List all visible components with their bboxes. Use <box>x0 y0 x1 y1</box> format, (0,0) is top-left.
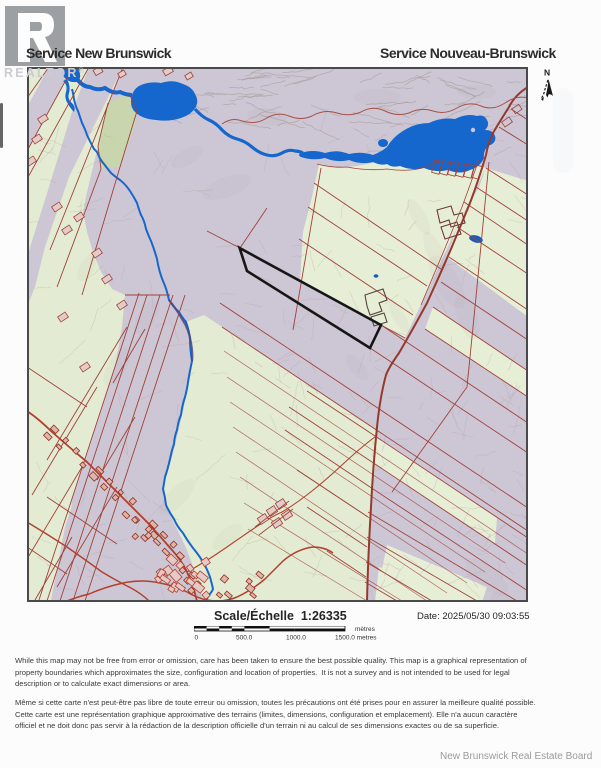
svg-text:1500.0 metres: 1500.0 metres <box>335 635 377 642</box>
svg-text:N: N <box>544 68 550 78</box>
svg-text:500.0: 500.0 <box>236 635 253 642</box>
svg-text:1000.0: 1000.0 <box>286 635 306 642</box>
svg-text:mètres: mètres <box>355 626 376 633</box>
svg-text:0: 0 <box>195 635 199 642</box>
